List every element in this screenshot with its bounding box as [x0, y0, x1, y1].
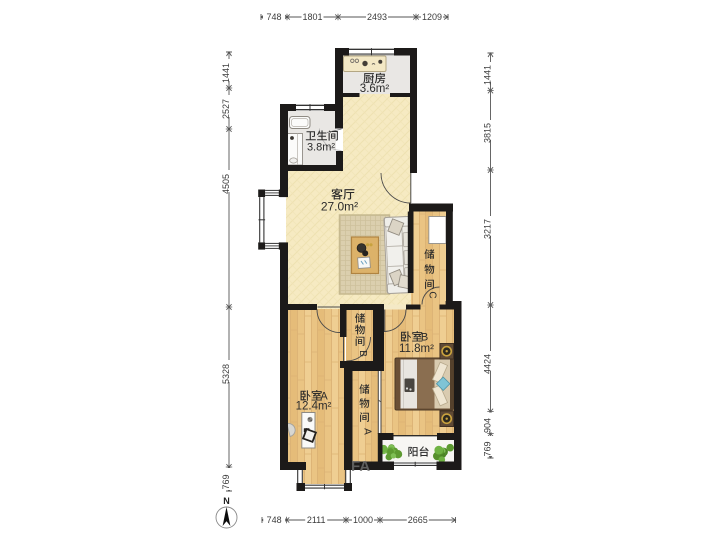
svg-text:C: C	[427, 291, 438, 298]
svg-text:1801: 1801	[302, 12, 322, 22]
svg-text:748: 748	[267, 515, 282, 525]
svg-text:B: B	[357, 350, 368, 357]
svg-text:1441: 1441	[221, 63, 231, 83]
svg-text:5328: 5328	[221, 364, 231, 384]
svg-text:2527: 2527	[221, 99, 231, 119]
svg-text:4505: 4505	[221, 174, 231, 194]
svg-text:B: B	[421, 332, 428, 344]
svg-text:2665: 2665	[408, 515, 428, 525]
svg-text:769: 769	[483, 441, 493, 456]
svg-text:FA: FA	[351, 458, 370, 475]
svg-text:27.0m²: 27.0m²	[321, 200, 358, 214]
svg-text:2493: 2493	[367, 12, 387, 22]
svg-text:3815: 3815	[483, 123, 493, 143]
svg-text:12.4m²: 12.4m²	[296, 401, 332, 413]
svg-text:904: 904	[483, 418, 493, 433]
svg-text:A: A	[362, 428, 373, 435]
svg-text:2111: 2111	[307, 515, 326, 525]
svg-text:769: 769	[221, 474, 231, 489]
svg-text:3.8m²: 3.8m²	[307, 142, 335, 154]
svg-text:748: 748	[266, 12, 281, 22]
svg-text:3.6m²: 3.6m²	[360, 83, 390, 95]
svg-text:11.8m²: 11.8m²	[399, 343, 434, 355]
svg-text:1000: 1000	[353, 515, 373, 525]
svg-text:1209: 1209	[422, 12, 442, 22]
svg-text:N: N	[223, 496, 230, 506]
svg-text:4424: 4424	[483, 354, 493, 374]
svg-text:1441: 1441	[483, 65, 493, 85]
svg-text:3217: 3217	[483, 219, 493, 239]
